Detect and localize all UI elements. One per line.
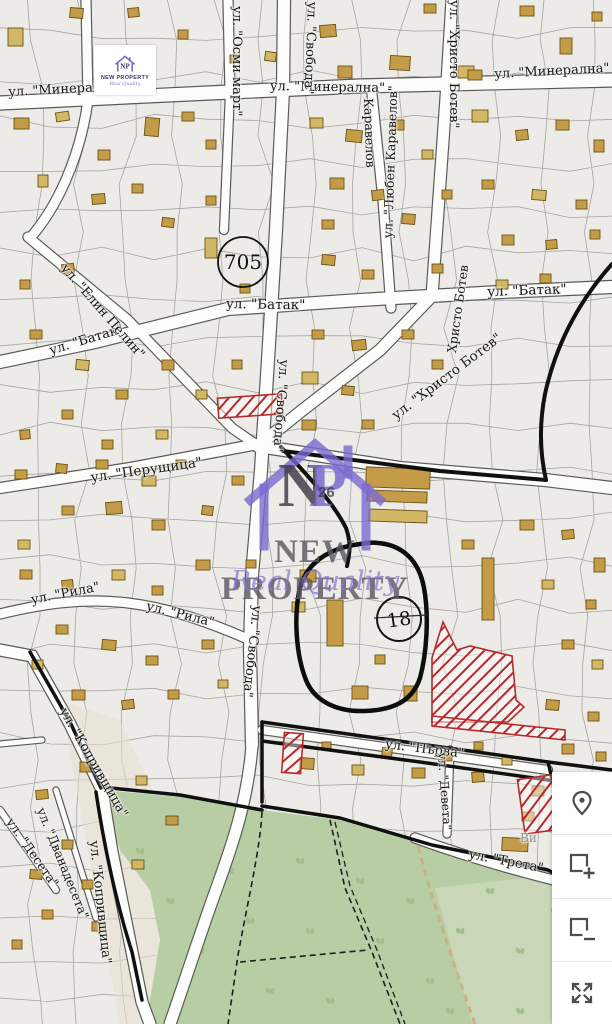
- remove-area-button[interactable]: [552, 899, 612, 962]
- locate-button[interactable]: [552, 772, 612, 835]
- square-plus-icon: [566, 850, 598, 882]
- map-canvas[interactable]: 705 18: [0, 0, 612, 1024]
- svg-text:NP: NP: [120, 62, 130, 70]
- logo-house-icon: NP: [113, 54, 137, 74]
- map-controls-panel: [552, 772, 612, 1024]
- svg-text:18: 18: [386, 607, 413, 632]
- logo-subtitle: Real Quality: [109, 81, 140, 87]
- agency-logo: NP NEW PROPERTY Real Quality: [94, 45, 156, 95]
- screenshot-root: 705 18 ул. "Минерална"ул. "Минерална"ул.…: [0, 0, 612, 1024]
- square-minus-icon: [566, 914, 598, 946]
- fullscreen-button[interactable]: [552, 962, 612, 1024]
- add-area-button[interactable]: [552, 835, 612, 898]
- map-pin-icon: [567, 788, 597, 818]
- svg-text:705: 705: [224, 250, 262, 274]
- fullscreen-arrows-icon: [567, 978, 597, 1008]
